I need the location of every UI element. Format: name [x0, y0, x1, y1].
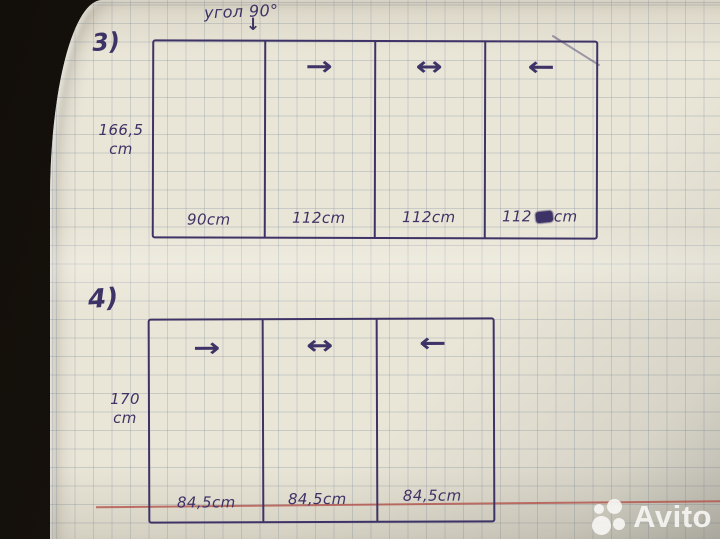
sketch3-rectangle: → ↔ ← 90cm 112cm 112cm 112cm — [152, 39, 599, 239]
down-arrow-icon: ↓ — [246, 15, 260, 35]
notebook-photo: угол 90° ↓ 3) 166,5 cm → ↔ ← 90cm 112cm … — [0, 0, 720, 539]
direction-arrow-left: ← — [389, 328, 477, 358]
sketch3-width-label-4: 112cm — [488, 207, 592, 225]
avito-logo-icon — [592, 499, 628, 535]
sketch3-height-label: 166,5 cm — [92, 121, 150, 159]
sketch3-height-unit: cm — [109, 140, 133, 158]
scribble-mark — [535, 211, 553, 224]
angle-annotation: угол 90° — [204, 1, 279, 23]
sketch4-height-label: 170 cm — [96, 390, 154, 428]
sketch4-number: 4) — [87, 283, 120, 315]
avito-watermark: Avito — [592, 499, 712, 535]
sketch3-width4-value: 112 — [502, 207, 532, 225]
sketch4-divider-1 — [262, 319, 265, 522]
sketch4-height-unit: cm — [113, 409, 137, 427]
sketch3-number: 3) — [91, 27, 121, 57]
direction-arrow-left: ← — [497, 52, 585, 82]
direction-arrow-right: → — [275, 52, 363, 82]
avito-watermark-text: Avito — [633, 499, 712, 535]
direction-arrow-both: ↔ — [385, 52, 473, 82]
direction-arrow-right: → — [163, 333, 251, 363]
sketch4-divider-2 — [376, 319, 379, 522]
sketch4-rectangle: → ↔ ← 84,5cm 84,5cm 84,5cm — [148, 317, 496, 523]
direction-arrow-both: ↔ — [276, 331, 364, 361]
sketch4-width-label-1: 84,5cm — [154, 493, 258, 511]
sketch4-width-label-3: 84,5cm — [380, 486, 484, 504]
sketch3-width-label-3: 112cm — [377, 208, 481, 226]
sketch3-height-value: 166,5 — [99, 121, 144, 139]
sketch3-divider-3 — [484, 41, 487, 238]
sketch4-height-value: 170 — [110, 390, 140, 408]
sketch4-width-label-2: 84,5cm — [265, 490, 369, 508]
sketch3-width4-unit: cm — [554, 207, 578, 225]
sketch3-width-label-2: 112cm — [267, 209, 371, 227]
sketch3-width-label-1: 90cm — [157, 210, 261, 228]
